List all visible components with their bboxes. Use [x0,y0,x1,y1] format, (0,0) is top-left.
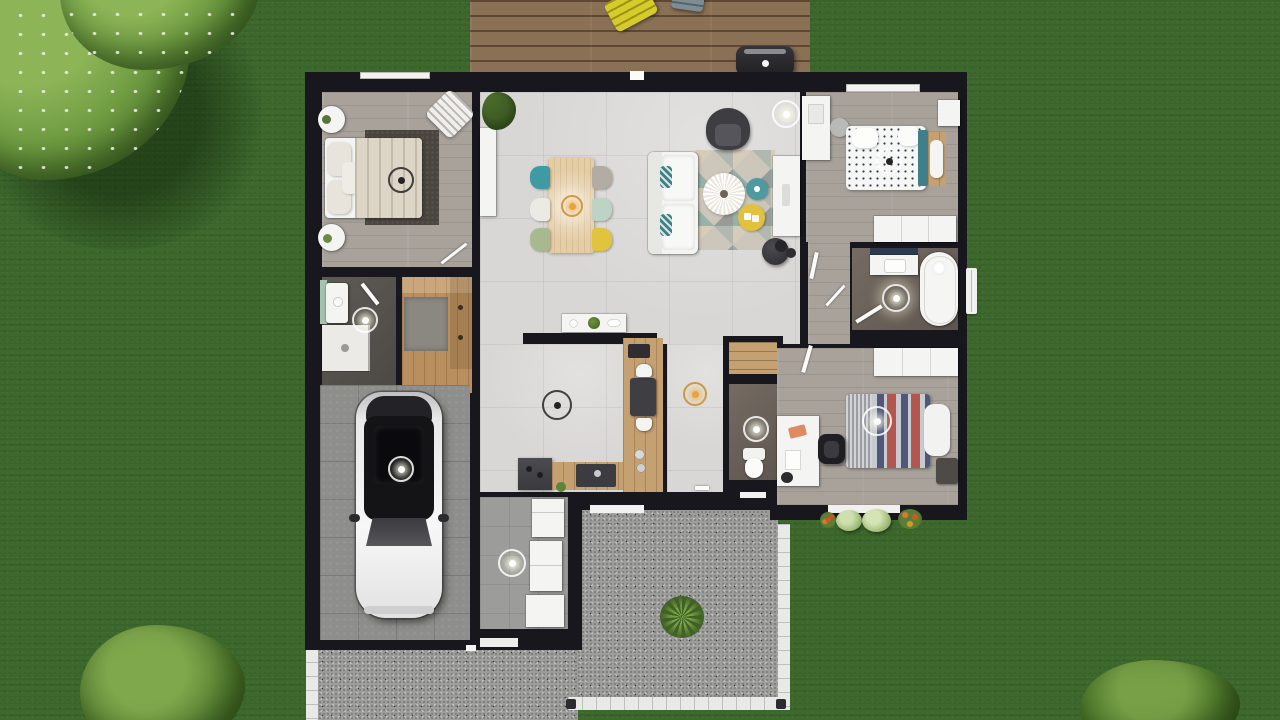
office-chair-seat [824,441,839,458]
washbasin [326,283,348,323]
dining-chair-cream [530,198,550,221]
burner [537,472,543,478]
shower-door [360,283,379,306]
island-plant [588,317,600,329]
yellow-side-table [738,204,765,231]
basin-drain [333,297,343,307]
dresser-seam [928,216,929,242]
vanity-backsplash [870,248,918,255]
teal-bench [918,130,928,186]
coffee-table [703,173,745,215]
bbq-lid-handle [762,60,769,67]
wall-cabinet [938,100,960,126]
terrace-border-right [778,524,790,710]
shrub [836,510,862,531]
bed-pillow [924,404,950,456]
nightstand-plant [323,234,332,243]
laundry-ceiling-light [498,549,526,577]
linen-closet [729,342,777,374]
window-north-bedroom1 [360,72,430,79]
door-leaf [440,242,467,264]
closet-carpet [404,297,448,351]
window-shutter-east [966,268,977,314]
car-mirror-right [438,514,449,522]
nook-table [630,378,656,416]
car-mirror-left [349,514,360,522]
terrace-door [695,486,709,490]
flower-cluster [820,512,836,528]
headboard-pillow [930,140,943,178]
flower-cluster [898,509,922,529]
dining-chair-gray [592,166,612,189]
gravel-driveway [318,648,578,720]
laundry-counter [526,595,564,627]
desk-notebook [788,424,807,439]
counter-jar [635,450,644,459]
bedroom2-ceiling-light [876,148,902,174]
potted-plant [482,92,516,130]
speaker [775,240,787,252]
corridor [667,344,723,492]
dining-chair-teal [530,166,550,189]
dark-nightstand [936,458,958,484]
corridor-pendant-light [683,382,707,406]
wardrobe [874,348,958,376]
bbq-knob-rail [744,49,786,54]
shower-drain [341,344,349,352]
nightstand [318,106,345,133]
bedroom3-ceiling-light [862,406,892,436]
desk-papers [808,104,824,124]
car-roof [364,416,434,520]
dining-pendant-light [561,195,583,217]
wardrobe-right [450,277,472,369]
room-bedroom-2 [806,92,958,242]
door-leaf [809,252,819,279]
terrace-post-right [776,699,786,709]
sideboard [480,128,496,216]
deck-door-marker [630,71,644,80]
bathtub-drain [932,261,946,275]
driveway-edge-tiles [306,648,318,720]
room-living-dining [480,92,800,344]
tray-item [744,213,751,220]
counter-plant [556,482,566,492]
room-laundry [480,497,568,629]
nook-chair [636,418,652,431]
garage-door-marker [466,645,476,651]
room-dressing [402,277,472,393]
terrace-border-bottom [568,697,782,710]
vanity-sink [870,255,918,275]
bathroom-ceiling-light [882,284,910,312]
wardrobe-handle [458,305,463,310]
faucet [594,470,601,477]
room-wc [729,384,777,480]
office-chair [818,434,845,464]
car [356,392,442,618]
floor-plan-scene [0,0,1280,720]
bed-dotted [846,126,926,190]
bedroom-hall [808,230,850,344]
nook-chair [636,364,652,377]
car-front-grille [364,606,434,614]
dining-chair-mint [592,198,612,221]
sink-basin [884,259,906,273]
room-garage [320,385,470,640]
kitchen-spot-lamp [542,390,572,420]
nightstand-plant [322,115,331,124]
window-sill-terrace-door [740,492,766,498]
terrace-potted-shrub [660,596,704,638]
fridge [532,499,564,537]
entry-door-mat [480,638,518,647]
bedroom3-door [801,345,813,373]
dining-chair-sage [530,228,550,251]
side-table-dot [754,186,760,192]
kitchen-wood-strip [623,338,663,492]
car-windshield [366,518,432,546]
room-bathroom [852,248,958,330]
coffee-table-center [720,190,728,198]
window-north-bedroom2 [846,84,920,92]
dresser [874,216,956,242]
room-kitchen [480,344,623,492]
wood-headboard [928,132,946,186]
range-unit [518,458,552,490]
room-bedroom-3 [777,348,958,505]
kitchen-island [562,314,626,332]
dresser-seam [901,216,902,242]
living-ceiling-light [772,100,800,128]
room-shower [322,277,396,393]
island-dish [570,320,577,327]
teal-throw-pillow [660,166,672,188]
terrace-post-left [566,699,576,709]
dining-chair-yellow [592,228,612,251]
window-sill-south-kitchen [590,505,644,513]
desk-object [781,472,793,483]
bathroom-door [855,304,883,323]
burner [526,466,532,472]
door-leaf [825,284,845,306]
window-sill-south-bedroom3 [828,505,900,513]
counter-jar [637,464,645,472]
bedroom2-desk [802,96,830,160]
counter-mat [628,344,650,358]
console-tray [782,184,790,206]
shrub [862,509,891,532]
toilet-bowl [745,458,763,478]
sofa [648,152,698,254]
bedroom3-desk [777,416,819,486]
armchair-seat [715,124,741,146]
dark-armchair [706,108,750,150]
double-bed [325,138,422,218]
speaker [786,248,796,258]
bed-pillow [898,126,920,146]
teal-throw-pillow [660,214,672,236]
tv-console [773,156,800,236]
tray-item [752,215,759,222]
island-dish [608,320,620,326]
shower-ceiling-light [352,307,378,333]
wardrobe-handle [458,335,463,340]
bathtub [920,252,958,326]
wood-counter [552,462,623,490]
garage-ceiling-light [388,456,414,482]
dining-table [548,158,594,253]
ceiling-fan-light [388,167,414,193]
wc-ceiling-light [743,416,769,442]
nightstand [318,224,345,251]
bed-pillow [852,128,878,148]
stacked-washer [530,541,562,591]
teal-side-table [746,178,768,200]
room-bedroom-1 [322,92,472,267]
desk-laptop [785,450,801,470]
wc-block [723,336,783,486]
